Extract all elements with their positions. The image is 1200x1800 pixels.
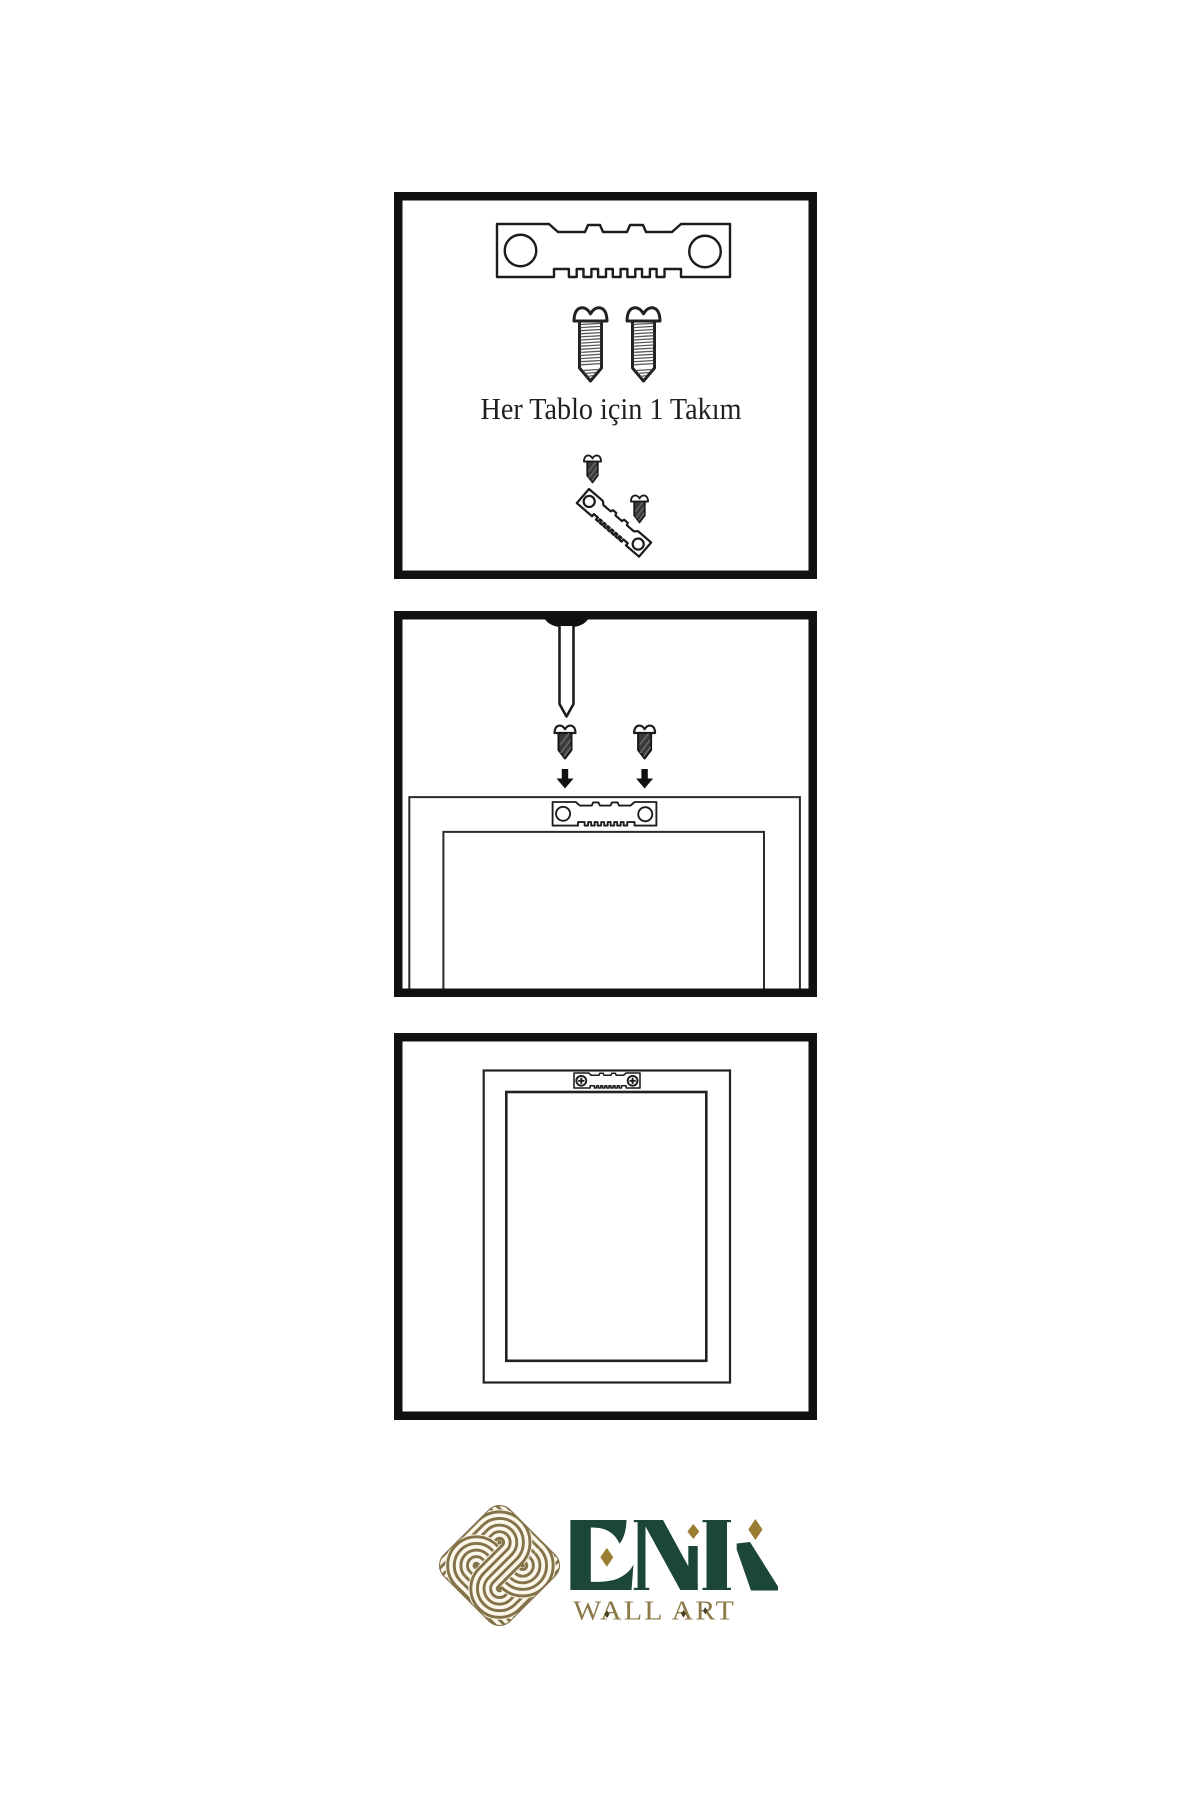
svg-text:WALL ART: WALL ART [573, 1595, 736, 1626]
svg-text:Her Tablo için 1 Takım: Her Tablo için 1 Takım [481, 392, 742, 426]
